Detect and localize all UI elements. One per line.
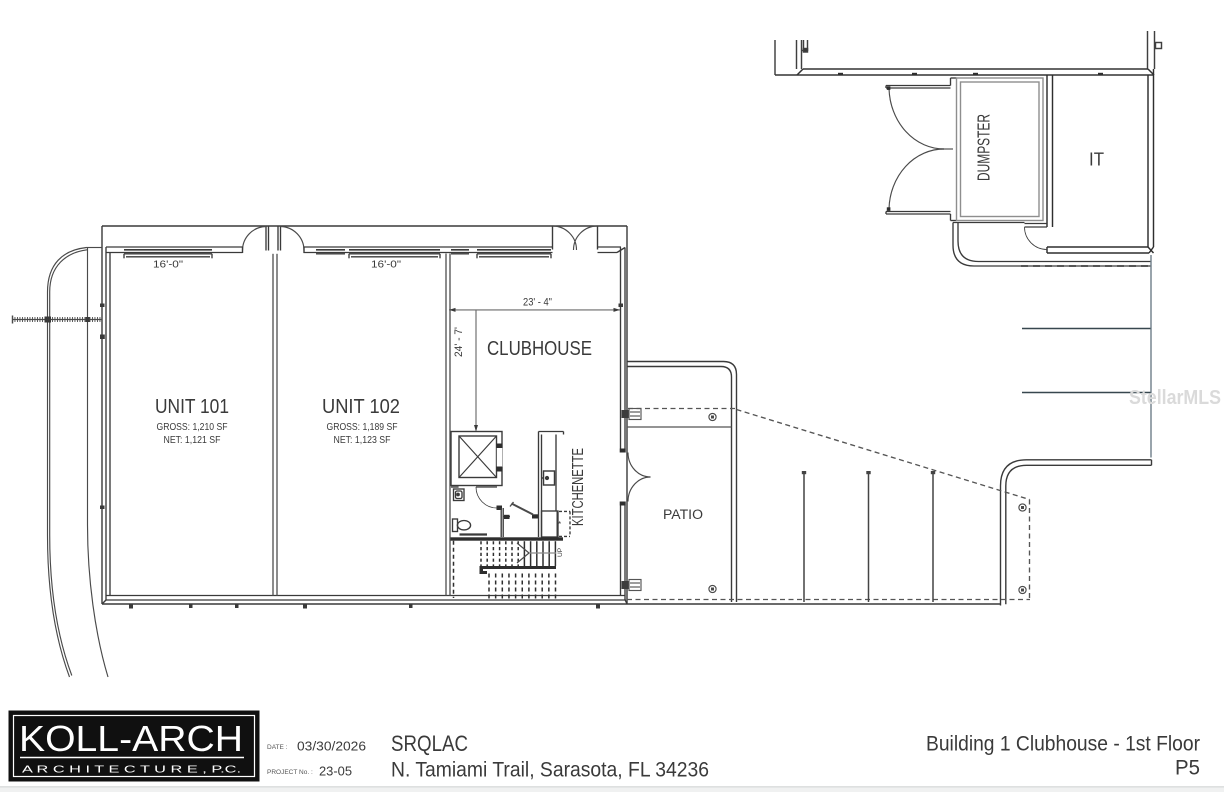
svg-text:PATIO: PATIO bbox=[663, 507, 703, 522]
svg-text:GROSS: 1,189 SF: GROSS: 1,189 SF bbox=[327, 422, 398, 433]
svg-text:24' - 7': 24' - 7' bbox=[453, 327, 465, 357]
svg-text:UNIT 101: UNIT 101 bbox=[155, 396, 229, 418]
svg-text:KOLL-ARCH: KOLL-ARCH bbox=[19, 718, 243, 759]
svg-text:P5: P5 bbox=[1175, 757, 1200, 780]
svg-text:NET: 1,121 SF: NET: 1,121 SF bbox=[164, 435, 221, 446]
svg-text:KITCHENETTE: KITCHENETTE bbox=[570, 448, 587, 526]
svg-text:StellarMLS: StellarMLS bbox=[1129, 387, 1221, 409]
svg-text:UP: UP bbox=[557, 548, 564, 557]
svg-text:GROSS: 1,210 SF: GROSS: 1,210 SF bbox=[157, 422, 228, 433]
svg-text:SRQLAC: SRQLAC bbox=[391, 731, 468, 756]
svg-text:23-05: 23-05 bbox=[319, 764, 352, 779]
svg-text:N. Tamiami Trail, Sarasota, FL: N. Tamiami Trail, Sarasota, FL 34236 bbox=[391, 759, 709, 782]
svg-text:IT: IT bbox=[1089, 150, 1104, 170]
svg-text:Building 1 Clubhouse - 1st Flo: Building 1 Clubhouse - 1st Floor bbox=[926, 733, 1200, 756]
svg-text:23' - 4": 23' - 4" bbox=[523, 297, 552, 309]
svg-text:16'-0": 16'-0" bbox=[153, 259, 183, 271]
svg-text:*: * bbox=[558, 520, 561, 529]
svg-text:DUMPSTER: DUMPSTER bbox=[974, 114, 994, 181]
svg-text:03/30/2026: 03/30/2026 bbox=[297, 739, 366, 754]
svg-text:CLUBHOUSE: CLUBHOUSE bbox=[487, 337, 592, 360]
svg-text:UNIT 102: UNIT 102 bbox=[322, 396, 400, 418]
svg-text:16'-0": 16'-0" bbox=[371, 259, 401, 271]
svg-text:A R C H I T E C T U R E , P.C.: A R C H I T E C T U R E , P.C. bbox=[22, 764, 241, 776]
svg-text:NET: 1,123 SF: NET: 1,123 SF bbox=[334, 435, 391, 446]
svg-text:PROJECT No. :: PROJECT No. : bbox=[267, 769, 313, 776]
svg-text:DATE :: DATE : bbox=[267, 744, 288, 751]
